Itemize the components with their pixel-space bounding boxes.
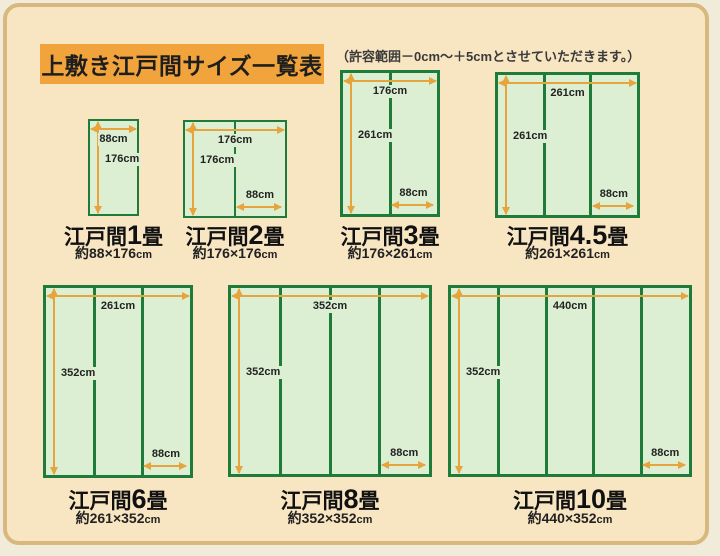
arrowhead-icon bbox=[235, 288, 243, 296]
width-arrow bbox=[232, 295, 428, 297]
diagram-name-suffix: 畳 bbox=[419, 227, 440, 248]
mat-divider bbox=[497, 288, 500, 474]
diagram-name: 江戸間6畳 bbox=[68, 486, 167, 513]
mat-width-arrow bbox=[643, 464, 685, 466]
arrowhead-icon bbox=[189, 122, 197, 130]
mat-divider bbox=[279, 288, 282, 474]
mat-width-label: 88cm bbox=[244, 189, 276, 202]
diagram-size-value: 約88×176 bbox=[75, 246, 136, 260]
diagram-name-number: 8 bbox=[343, 486, 358, 513]
width-label: 261cm bbox=[99, 300, 137, 313]
diagram-name-number: 6 bbox=[131, 486, 146, 513]
mat-divider bbox=[378, 288, 381, 474]
mat-width-arrow bbox=[144, 465, 186, 467]
arrowhead-icon bbox=[502, 75, 510, 83]
height-label: 176cm bbox=[103, 153, 141, 166]
mat-divider bbox=[589, 75, 592, 215]
mat-divider bbox=[640, 288, 643, 474]
height-label: 261cm bbox=[356, 129, 394, 142]
mat-rect: 440cm352cm88cm bbox=[448, 285, 692, 477]
diagram-size: 約261×352cm bbox=[76, 511, 161, 526]
mat-rect: 176cm176cm88cm bbox=[183, 120, 287, 218]
arrowhead-icon bbox=[502, 207, 510, 215]
height-arrow bbox=[350, 74, 352, 213]
diagram-name-number: 10 bbox=[576, 486, 606, 513]
diagram-size-unit: cm bbox=[357, 515, 373, 526]
diagram-size: 約261×261cm bbox=[525, 246, 610, 261]
height-label: 352cm bbox=[244, 366, 282, 379]
mat-width-label: 88cm bbox=[388, 447, 420, 460]
arrowhead-icon bbox=[455, 466, 463, 474]
diagram-size-unit: cm bbox=[145, 515, 161, 526]
arrowhead-icon bbox=[626, 202, 634, 210]
mat-divider bbox=[545, 288, 548, 474]
diagram-size-unit: cm bbox=[136, 250, 152, 261]
mat-width-arrow bbox=[382, 464, 426, 466]
mat-rect: 261cm352cm88cm bbox=[43, 285, 193, 478]
diagram-size-value: 約261×261 bbox=[525, 246, 594, 260]
width-arrow bbox=[344, 80, 436, 82]
mat-divider bbox=[93, 288, 96, 475]
width-arrow bbox=[186, 129, 284, 131]
diagram-name-suffix: 畳 bbox=[264, 227, 285, 248]
height-arrow bbox=[238, 289, 240, 473]
height-label: 261cm bbox=[511, 130, 549, 143]
mat-divider bbox=[543, 75, 546, 215]
mat-rect: 176cm261cm88cm bbox=[340, 70, 440, 217]
width-arrow bbox=[499, 82, 636, 84]
height-arrow bbox=[53, 289, 55, 474]
mat-rect: 261cm261cm88cm bbox=[495, 72, 640, 218]
mat-divider bbox=[141, 288, 144, 475]
arrowhead-icon bbox=[678, 461, 686, 469]
mat-width-arrow bbox=[237, 206, 281, 208]
diagram-name-prefix: 江戸間 bbox=[513, 491, 576, 512]
arrowhead-icon bbox=[94, 206, 102, 214]
diagram-size: 約88×176cm bbox=[75, 246, 152, 261]
arrowhead-icon bbox=[418, 461, 426, 469]
diagram-size: 約352×352cm bbox=[288, 511, 373, 526]
arrowhead-icon bbox=[94, 121, 102, 129]
arrowhead-icon bbox=[421, 292, 429, 300]
mat-width-arrow bbox=[392, 204, 433, 206]
arrowhead-icon bbox=[455, 288, 463, 296]
width-label: 176cm bbox=[371, 85, 409, 98]
width-label: 88cm bbox=[97, 133, 129, 146]
diagram-size: 約440×352cm bbox=[528, 511, 613, 526]
page-title: 上敷き江戸間サイズ一覧表 bbox=[40, 44, 324, 84]
height-arrow bbox=[505, 76, 507, 214]
width-label: 440cm bbox=[551, 300, 589, 313]
mat-width-arrow bbox=[593, 205, 633, 207]
diagram-name: 江戸間10畳 bbox=[513, 486, 627, 513]
diagram-name-prefix: 江戸間 bbox=[280, 491, 343, 512]
arrowhead-icon bbox=[642, 461, 650, 469]
diagram-name-suffix: 畳 bbox=[359, 491, 380, 512]
arrowhead-icon bbox=[347, 206, 355, 214]
arrowhead-icon bbox=[592, 202, 600, 210]
diagram-name-suffix: 畳 bbox=[147, 491, 168, 512]
mat-rect: 88cm176cm bbox=[88, 119, 139, 216]
diagram-size-value: 約352×352 bbox=[288, 511, 357, 525]
diagram-name-prefix: 江戸間 bbox=[68, 491, 131, 512]
arrowhead-icon bbox=[182, 292, 190, 300]
diagram-size-value: 約261×352 bbox=[76, 511, 145, 525]
mat-width-label: 88cm bbox=[150, 448, 182, 461]
height-arrow bbox=[192, 123, 194, 215]
diagram-size-unit: cm bbox=[597, 515, 613, 526]
diagram-name: 江戸間8畳 bbox=[280, 486, 379, 513]
arrowhead-icon bbox=[681, 292, 689, 300]
width-arrow bbox=[452, 295, 688, 297]
height-label: 352cm bbox=[464, 366, 502, 379]
arrowhead-icon bbox=[50, 288, 58, 296]
diagram-size: 約176×261cm bbox=[348, 246, 433, 261]
arrowhead-icon bbox=[629, 79, 637, 87]
diagram-name-suffix: 畳 bbox=[607, 227, 628, 248]
width-label: 176cm bbox=[216, 134, 254, 147]
diagram-size-unit: cm bbox=[594, 250, 610, 261]
diagram-size-unit: cm bbox=[262, 250, 278, 261]
mat-width-label: 88cm bbox=[397, 187, 429, 200]
diagram-size: 約176×176cm bbox=[193, 246, 278, 261]
arrowhead-icon bbox=[143, 462, 151, 470]
mat-width-label: 88cm bbox=[598, 188, 630, 201]
arrowhead-icon bbox=[274, 203, 282, 211]
diagram-size-value: 約176×261 bbox=[348, 246, 417, 260]
width-arrow bbox=[47, 295, 189, 297]
arrowhead-icon bbox=[426, 201, 434, 209]
mat-width-label: 88cm bbox=[649, 447, 681, 460]
arrowhead-icon bbox=[189, 208, 197, 216]
arrowhead-icon bbox=[277, 126, 285, 134]
diagram-size-unit: cm bbox=[417, 250, 433, 261]
arrowhead-icon bbox=[179, 462, 187, 470]
mat-rect: 352cm352cm88cm bbox=[228, 285, 432, 477]
mat-divider bbox=[592, 288, 595, 474]
arrowhead-icon bbox=[347, 73, 355, 81]
arrowhead-icon bbox=[381, 461, 389, 469]
diagram-name-suffix: 畳 bbox=[606, 491, 627, 512]
arrowhead-icon bbox=[391, 201, 399, 209]
width-label: 352cm bbox=[311, 300, 349, 313]
mat-divider bbox=[329, 288, 332, 474]
height-label: 352cm bbox=[59, 367, 97, 380]
diagram-size-value: 約176×176 bbox=[193, 246, 262, 260]
tolerance-note: （許容範囲－0cm～＋5cmとさせていただきます。） bbox=[336, 46, 640, 65]
arrowhead-icon bbox=[429, 77, 437, 85]
arrowhead-icon bbox=[129, 125, 137, 133]
arrowhead-icon bbox=[50, 467, 58, 475]
width-label: 261cm bbox=[548, 87, 586, 100]
height-arrow bbox=[458, 289, 460, 473]
diagram-size-value: 約440×352 bbox=[528, 511, 597, 525]
diagram-name-suffix: 畳 bbox=[142, 227, 163, 248]
arrowhead-icon bbox=[235, 466, 243, 474]
arrowhead-icon bbox=[236, 203, 244, 211]
height-label: 176cm bbox=[198, 154, 236, 167]
